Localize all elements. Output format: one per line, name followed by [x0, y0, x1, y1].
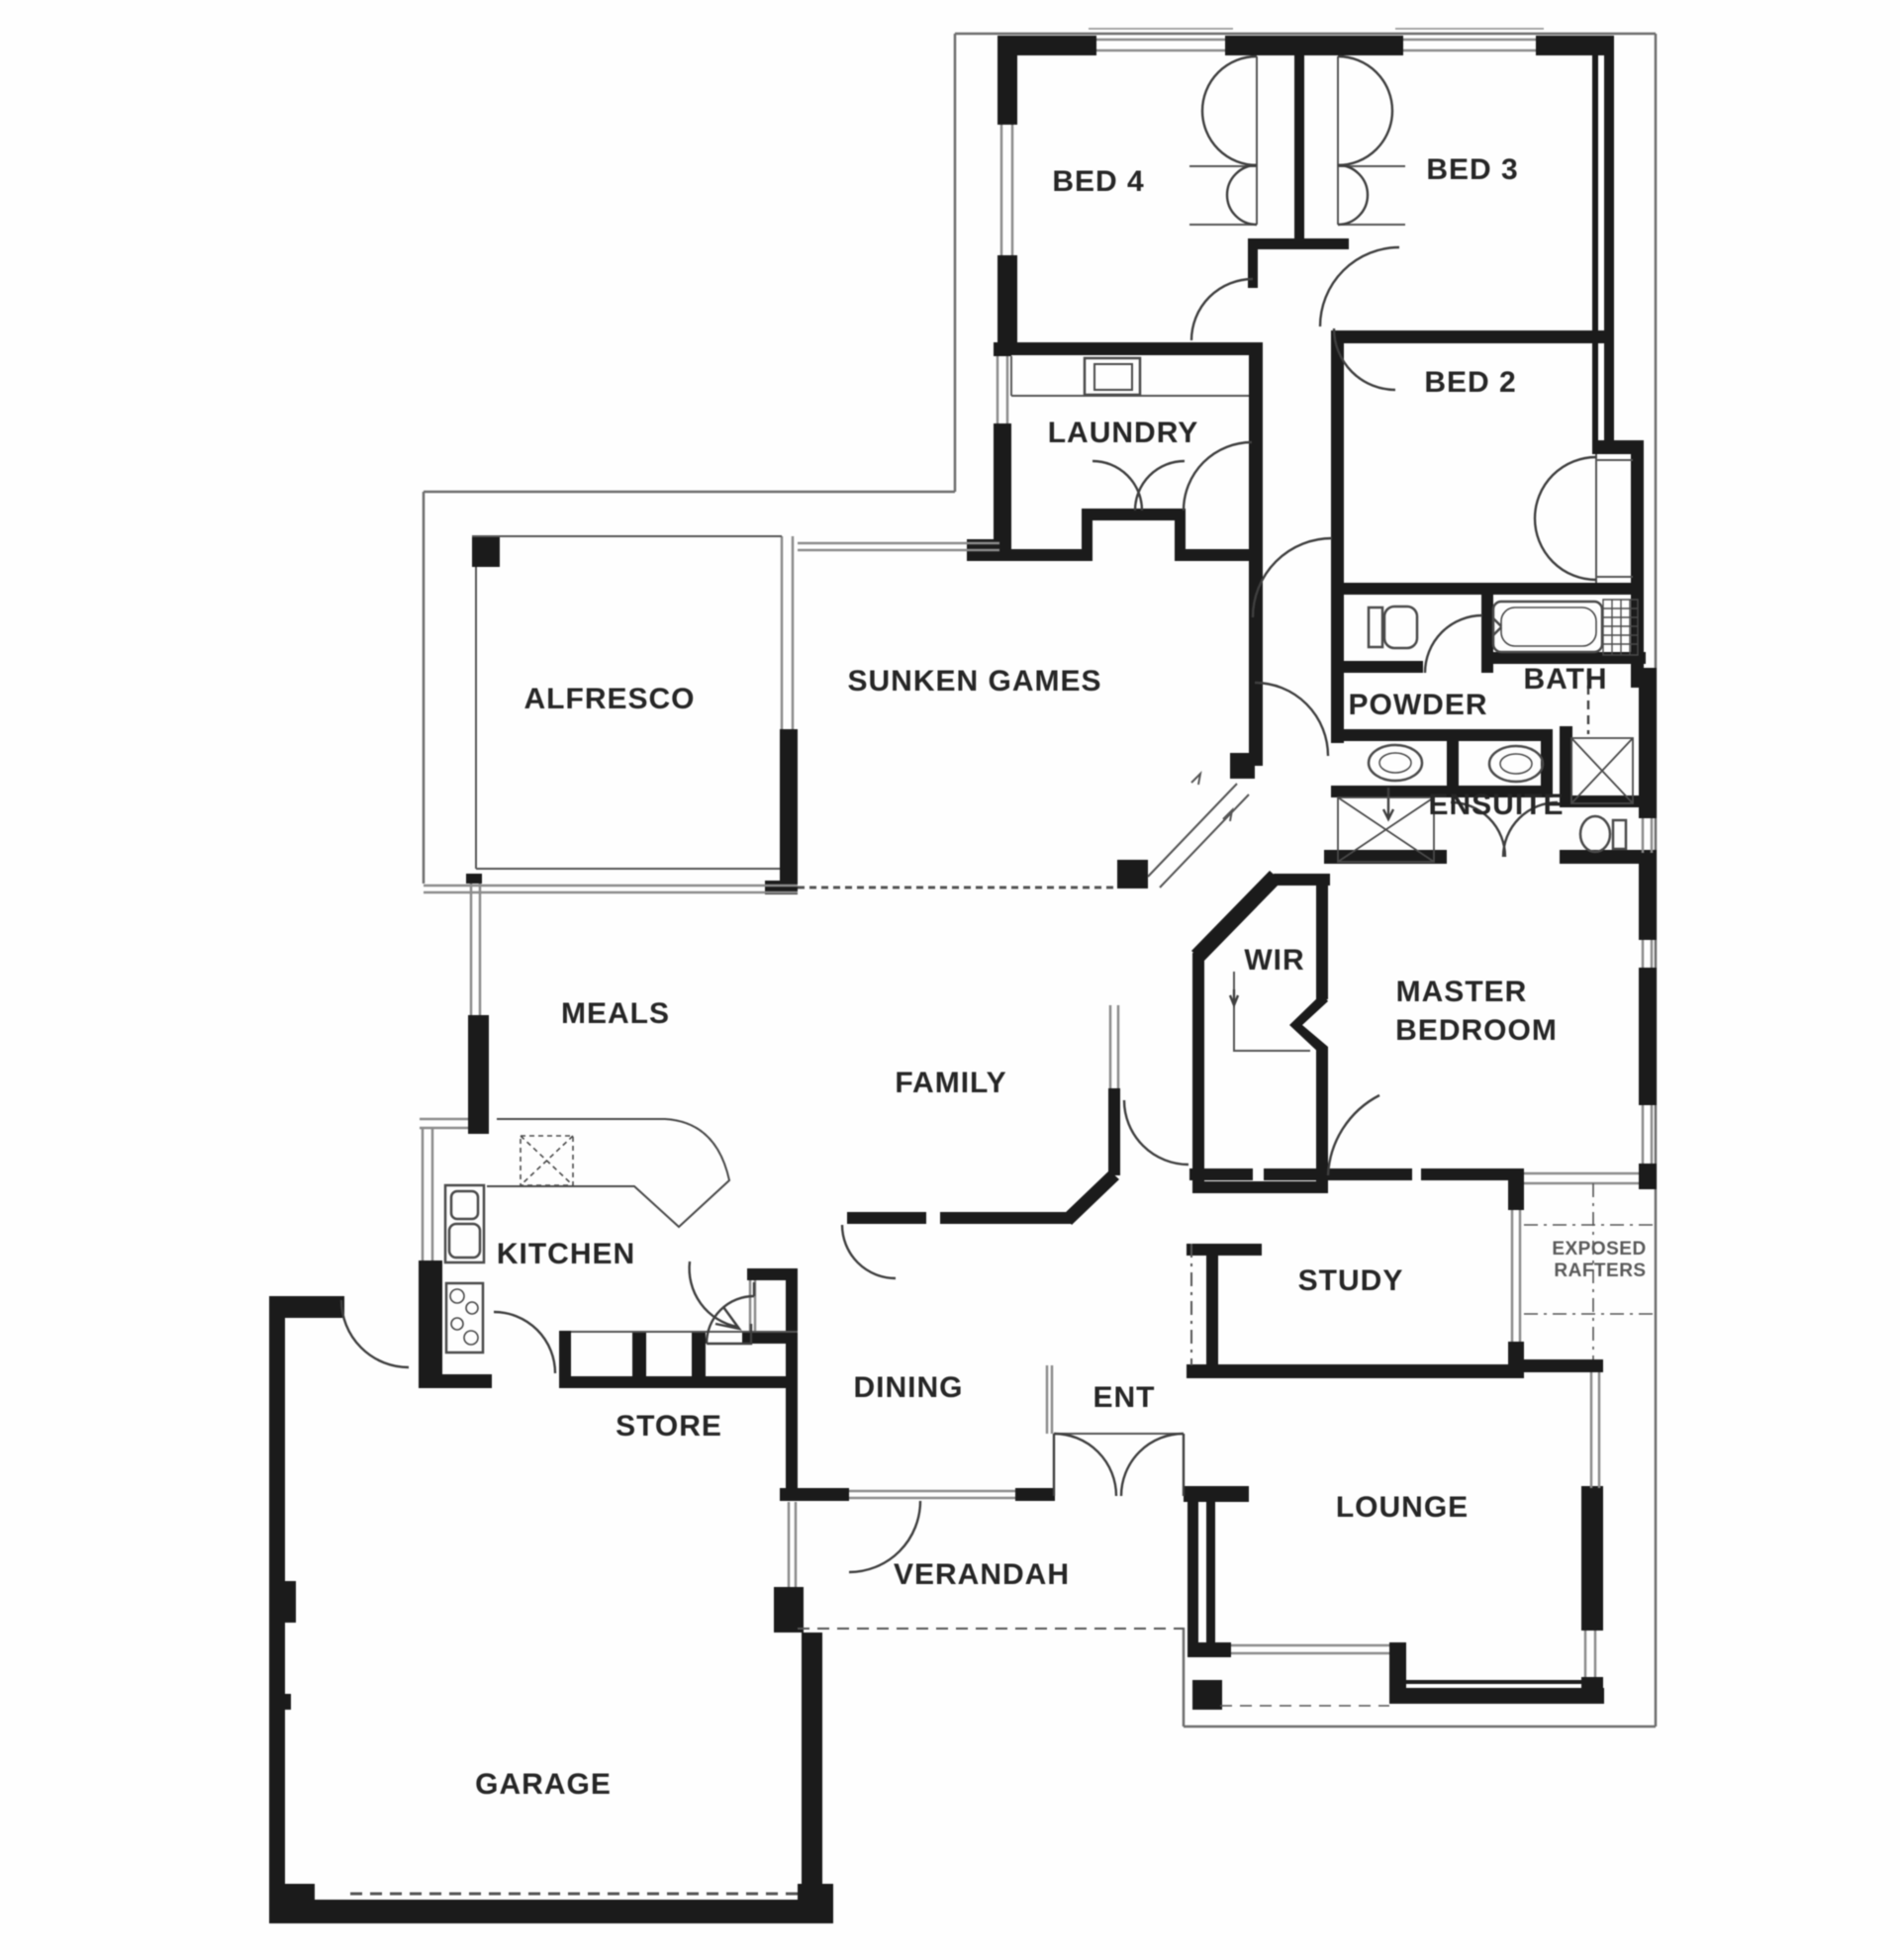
svg-text:EXPOSED: EXPOSED — [1552, 1239, 1646, 1260]
svg-text:POWDER: POWDER — [1349, 689, 1488, 721]
svg-text:LAUNDRY: LAUNDRY — [1048, 417, 1199, 449]
svg-text:STUDY: STUDY — [1298, 1264, 1404, 1297]
svg-text:FAMILY: FAMILY — [895, 1067, 1006, 1099]
svg-text:SUNKEN GAMES: SUNKEN GAMES — [847, 665, 1101, 698]
svg-text:MEALS: MEALS — [561, 997, 670, 1030]
svg-text:MASTER: MASTER — [1396, 976, 1528, 1008]
svg-text:GARAGE: GARAGE — [475, 1768, 612, 1801]
svg-text:RAFTERS: RAFTERS — [1554, 1260, 1646, 1281]
svg-text:BED 4: BED 4 — [1052, 165, 1144, 198]
svg-text:BEDROOM: BEDROOM — [1395, 1014, 1558, 1047]
svg-text:ENSUITE: ENSUITE — [1428, 789, 1564, 821]
svg-text:WIR: WIR — [1244, 944, 1304, 977]
svg-text:BED 3: BED 3 — [1426, 153, 1518, 186]
svg-text:STORE: STORE — [616, 1410, 722, 1443]
svg-text:DINING: DINING — [854, 1371, 964, 1404]
svg-text:BATH: BATH — [1523, 663, 1607, 696]
svg-text:VERANDAH: VERANDAH — [894, 1558, 1070, 1591]
svg-text:ALFRESCO: ALFRESCO — [524, 683, 696, 715]
svg-text:LOUNGE: LOUNGE — [1336, 1491, 1469, 1524]
svg-text:ENT: ENT — [1093, 1381, 1156, 1414]
svg-text:KITCHEN: KITCHEN — [497, 1238, 635, 1270]
svg-text:BED 2: BED 2 — [1424, 366, 1516, 399]
